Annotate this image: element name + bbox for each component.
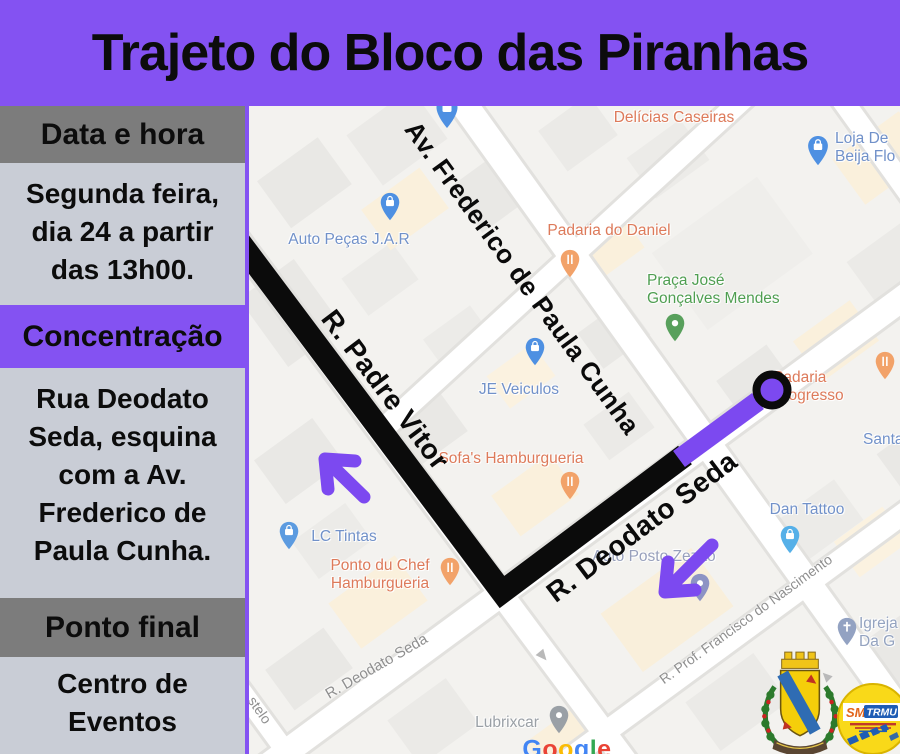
smtrmu-logo: SM TRMU: [837, 683, 900, 754]
section-header-date: Data e hora: [0, 106, 245, 163]
section-header-concentration: Concentração: [0, 305, 245, 368]
title-bar: Trajeto do Bloco das Piranhas: [0, 0, 900, 106]
smtrmu-text-sm: SM: [846, 705, 867, 720]
section-body-concentration: Rua Deodato Seda, esquina com a Av. Fred…: [0, 368, 245, 598]
info-sidebar: Data e hora Segunda feira, dia 24 a part…: [0, 106, 249, 754]
section-body-date: Segunda feira, dia 24 a partir das 13h00…: [0, 163, 245, 305]
section-body-endpoint: Centro de Eventos: [0, 657, 245, 754]
smtrmu-text-trmu: TRMU: [867, 707, 898, 719]
city-coat-of-arms-logo: [754, 646, 846, 754]
page-title: Trajeto do Bloco das Piranhas: [92, 23, 809, 83]
concentration-point-marker: [757, 375, 788, 406]
flyer-canvas: Trajeto do Bloco das Piranhas Data e hor…: [0, 0, 900, 754]
section-header-endpoint: Ponto final: [0, 598, 245, 657]
route-map: Delícias Caseiras Loja De Beija Flo Auto…: [249, 106, 900, 754]
